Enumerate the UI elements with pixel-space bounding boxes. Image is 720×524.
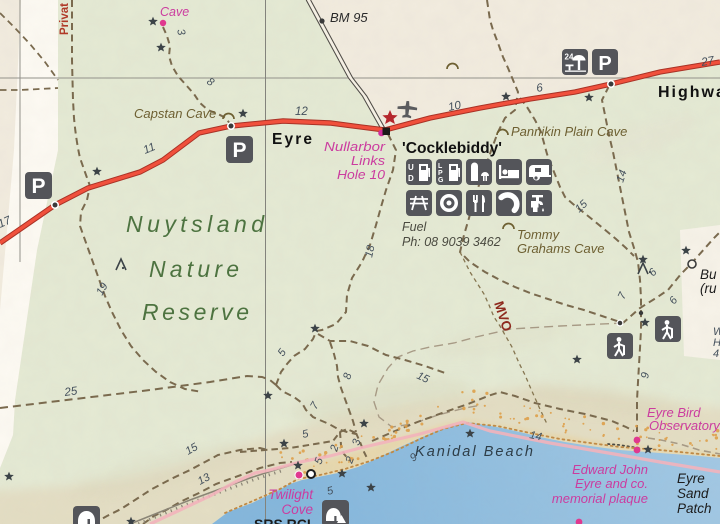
svg-text:Ph: 08 9039 3462: Ph: 08 9039 3462	[402, 235, 501, 249]
svg-text:Eyre and co.: Eyre and co.	[575, 476, 648, 491]
svg-text:Capstan Cave: Capstan Cave	[134, 106, 216, 121]
svg-text:memorial plaque: memorial plaque	[552, 491, 648, 506]
svg-text:Cove: Cove	[281, 502, 313, 517]
svg-text:27: 27	[699, 55, 715, 69]
svg-text:D: D	[408, 174, 414, 183]
svg-text:25: 25	[63, 385, 79, 399]
svg-text:12: 12	[295, 106, 308, 118]
svg-text:4: 4	[713, 348, 719, 360]
svg-text:Observatory: Observatory	[649, 418, 720, 433]
svg-text:Cave: Cave	[160, 5, 189, 19]
svg-text:BM 95: BM 95	[330, 10, 368, 25]
svg-text:P: P	[232, 139, 246, 162]
svg-text:Tommy: Tommy	[517, 227, 561, 242]
svg-text:Edward John: Edward John	[572, 462, 648, 477]
svg-text:Privat: Privat	[59, 3, 71, 35]
svg-text:'Cocklebiddy': 'Cocklebiddy'	[402, 140, 502, 157]
svg-text:P: P	[598, 53, 611, 75]
svg-text:Patch: Patch	[677, 501, 712, 516]
svg-text:Twilight: Twilight	[268, 487, 314, 502]
svg-text:Eyre: Eyre	[677, 471, 705, 486]
svg-text:Fuel: Fuel	[402, 220, 428, 234]
svg-text:Hole 10: Hole 10	[337, 168, 385, 182]
svg-text:Bu: Bu	[700, 267, 717, 282]
svg-text:P: P	[31, 175, 45, 198]
svg-text:14: 14	[528, 429, 542, 443]
svg-text:P: P	[438, 170, 443, 177]
svg-text:(ru: (ru	[700, 281, 717, 296]
svg-text:SRS RCL: SRS RCL	[254, 516, 316, 524]
svg-text:Nullarbor: Nullarbor	[324, 140, 386, 154]
svg-text:Pannikin Plain Cave: Pannikin Plain Cave	[511, 124, 627, 139]
svg-text:Nuytsland: Nuytsland	[126, 211, 265, 237]
svg-text:Links: Links	[351, 154, 385, 168]
svg-text:Highwa: Highwa	[658, 84, 720, 101]
svg-text:Grahams Cave: Grahams Cave	[517, 241, 604, 256]
svg-text:G: G	[438, 177, 444, 184]
svg-text:Sand: Sand	[677, 486, 709, 501]
svg-text:Kanidal Beach: Kanidal Beach	[415, 444, 533, 460]
svg-text:U: U	[408, 163, 414, 172]
svg-text:L: L	[438, 163, 443, 170]
svg-text:Eyre: Eyre	[272, 131, 312, 148]
